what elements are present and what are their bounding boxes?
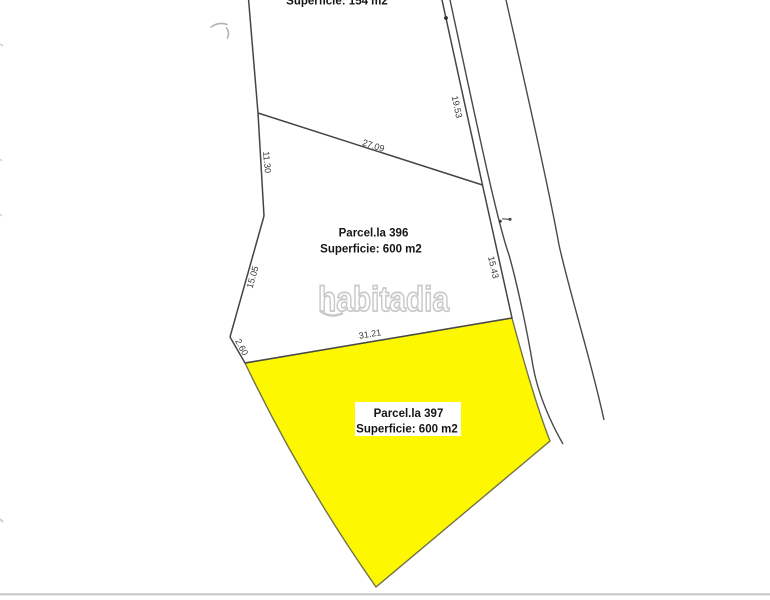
svg-text:habitadia: habitadia	[318, 280, 449, 319]
svg-text:Superficie: 600 m2: Superficie: 600 m2	[356, 424, 458, 436]
svg-text:11.30: 11.30	[261, 151, 273, 174]
svg-text:Parcel.la 396: Parcel.la 396	[339, 228, 409, 240]
svg-text:Parcel.la 397: Parcel.la 397	[374, 408, 444, 420]
svg-text:Superficie: 154 m2: Superficie: 154 m2	[286, 0, 388, 8]
svg-text:Superficie: 600 m2: Superficie: 600 m2	[320, 244, 422, 256]
